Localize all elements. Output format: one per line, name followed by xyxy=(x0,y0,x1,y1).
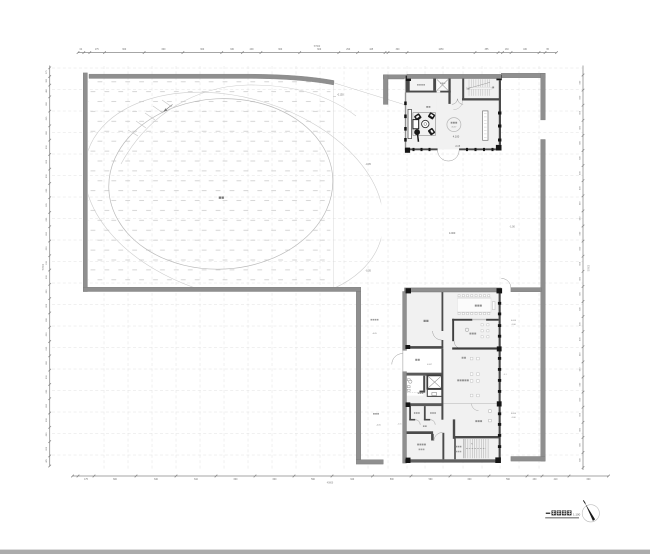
svg-text:4.000: 4.000 xyxy=(511,320,517,322)
svg-text:45.67: 45.67 xyxy=(451,127,457,129)
svg-text:4.867: 4.867 xyxy=(427,364,433,366)
svg-text:4.100: 4.100 xyxy=(453,135,460,139)
svg-text:-0.150: -0.150 xyxy=(337,95,344,97)
svg-text:-0.05: -0.05 xyxy=(455,146,461,148)
svg-text:57600: 57600 xyxy=(314,46,321,48)
svg-text:-0.05: -0.05 xyxy=(366,164,372,166)
svg-text:-1.00: -1.00 xyxy=(510,227,516,229)
svg-text:4.000: 4.000 xyxy=(511,413,517,415)
svg-text:1:100: 1:100 xyxy=(573,512,581,516)
svg-text:-0.1: -0.1 xyxy=(504,374,507,376)
svg-text:1050: 1050 xyxy=(438,49,444,51)
svg-text:-0.05: -0.05 xyxy=(366,271,372,273)
svg-text:4.000: 4.000 xyxy=(449,232,456,235)
svg-text:F1: F1 xyxy=(471,443,473,445)
svg-text:-0.05: -0.05 xyxy=(397,424,401,426)
svg-text:57600: 57600 xyxy=(43,263,45,270)
svg-text:40000: 40000 xyxy=(327,483,334,485)
svg-text:57600: 57600 xyxy=(588,264,590,271)
